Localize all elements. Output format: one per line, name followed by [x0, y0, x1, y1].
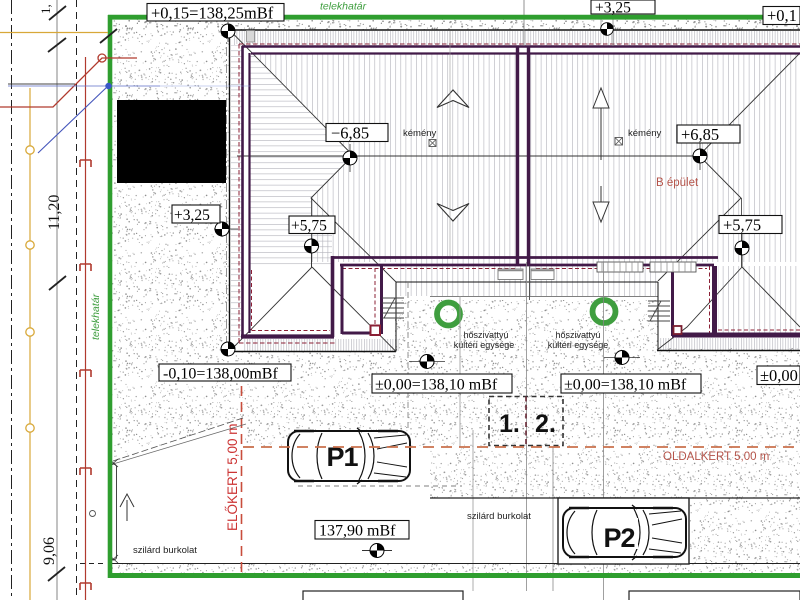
svg-text:±0,00=138,10 mBf: ±0,00=138,10 mBf	[375, 377, 498, 394]
svg-text:+3,25: +3,25	[595, 0, 631, 17]
svg-text:±0,00: ±0,00	[760, 366, 798, 385]
svg-text:kültéri egysége: kültéri egysége	[454, 340, 515, 350]
svg-text:11,20: 11,20	[46, 195, 63, 230]
svg-text:±0,00=138,10 mBf: ±0,00=138,10 mBf	[564, 377, 687, 394]
svg-text:137,90 mBf: 137,90 mBf	[319, 523, 396, 540]
svg-text:+6,85: +6,85	[681, 125, 719, 144]
svg-text:+5,75: +5,75	[291, 218, 327, 235]
svg-text:+5,75: +5,75	[723, 216, 761, 235]
svg-text:+0,15=138,25mBf: +0,15=138,25mBf	[151, 4, 274, 23]
svg-text:hőszivattyú: hőszivattyú	[463, 330, 508, 340]
svg-text:1.: 1.	[499, 410, 520, 438]
svg-text:-0,10=138,00mBf: -0,10=138,00mBf	[163, 366, 278, 383]
svg-text:szilárd burkolat: szilárd burkolat	[133, 545, 197, 556]
svg-text:2.: 2.	[535, 410, 556, 438]
svg-text:ELŐKERT 5,00 m: ELŐKERT 5,00 m	[225, 423, 240, 531]
svg-text:OLDALKERT 5,00 m: OLDALKERT 5,00 m	[663, 451, 769, 463]
svg-text:kémény: kémény	[628, 128, 662, 139]
svg-text:P2: P2	[603, 523, 634, 553]
svg-text:kültéri egysége: kültéri egysége	[548, 340, 609, 350]
svg-text:+3,25: +3,25	[174, 207, 210, 224]
svg-text:+0,1: +0,1	[767, 6, 797, 25]
svg-text:hőszivattyú: hőszivattyú	[555, 330, 600, 340]
svg-text:kémény: kémény	[403, 128, 437, 139]
svg-text:telekhatár: telekhatár	[90, 293, 102, 340]
svg-text:szilárd burkolat: szilárd burkolat	[467, 511, 531, 522]
svg-text:9,06: 9,06	[41, 537, 58, 565]
svg-text:−6,85: −6,85	[331, 124, 369, 143]
svg-text:1,: 1,	[38, 4, 53, 14]
svg-text:telekhatár: telekhatár	[320, 1, 367, 13]
svg-text:B épület: B épület	[656, 177, 699, 189]
